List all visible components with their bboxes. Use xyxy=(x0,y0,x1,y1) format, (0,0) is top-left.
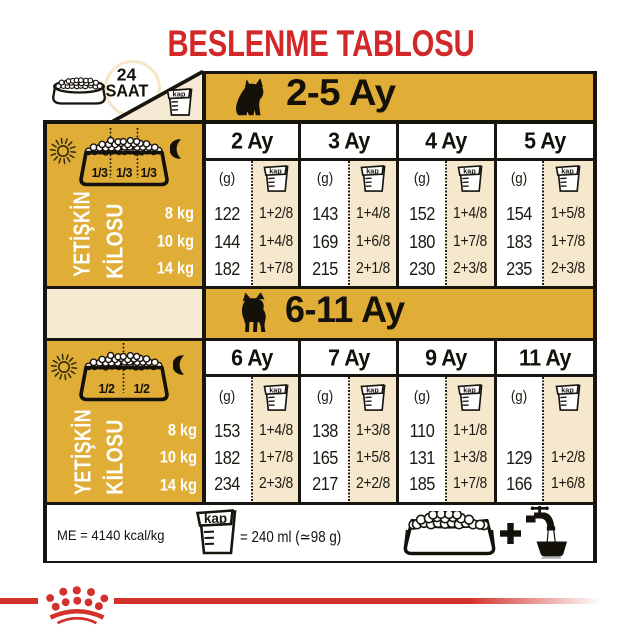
svg-text:kap: kap xyxy=(204,511,227,526)
